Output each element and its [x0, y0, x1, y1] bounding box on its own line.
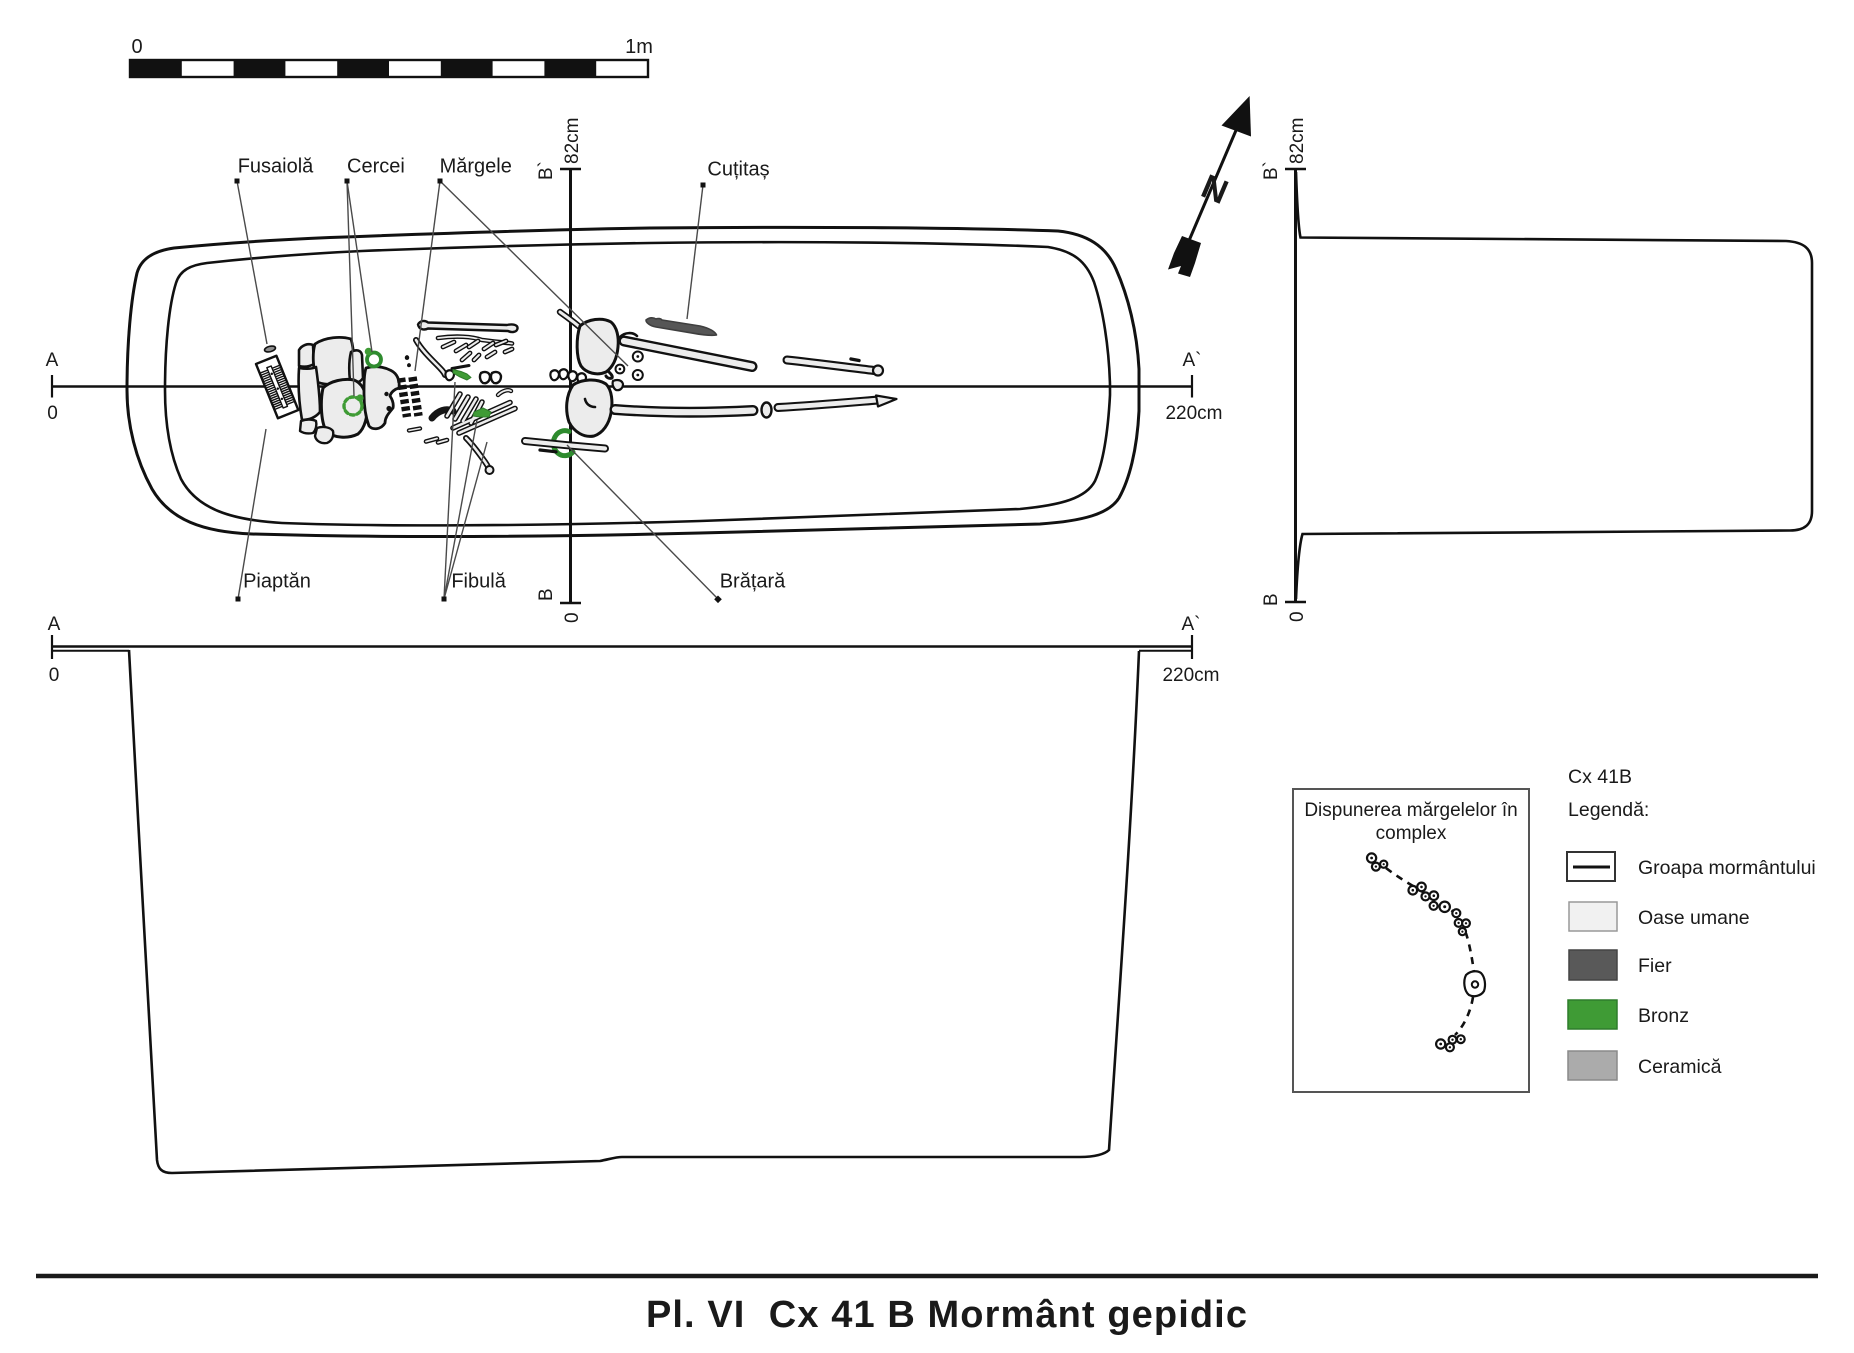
svg-text:complex: complex — [1376, 823, 1447, 844]
svg-text:0: 0 — [1287, 611, 1308, 622]
svg-text:Brățară: Brățară — [720, 571, 786, 593]
svg-text:B: B — [536, 588, 557, 601]
svg-text:220cm: 220cm — [1165, 403, 1222, 424]
svg-text:Bronz: Bronz — [1638, 1005, 1689, 1027]
svg-text:0: 0 — [131, 36, 142, 58]
svg-text:Piaptăn: Piaptăn — [243, 571, 311, 593]
svg-text:Cercei: Cercei — [347, 156, 405, 178]
svg-text:220cm: 220cm — [1162, 665, 1219, 686]
svg-text:A`: A` — [1183, 350, 1202, 371]
svg-text:Groapa mormântului: Groapa mormântului — [1638, 857, 1816, 879]
svg-text:Oase umane: Oase umane — [1638, 907, 1750, 929]
svg-text:Ceramică: Ceramică — [1638, 1056, 1722, 1078]
svg-text:0: 0 — [562, 612, 583, 623]
svg-text:82cm: 82cm — [1287, 118, 1308, 164]
svg-text:Pl. VI Cx 41 B Mormânt gepidi: Pl. VI Cx 41 B Mormânt gepidic — [646, 1294, 1248, 1336]
svg-text:Cuțitaș: Cuțitaș — [707, 159, 769, 181]
svg-text:Legendă:: Legendă: — [1568, 799, 1649, 821]
svg-text:Fibulă: Fibulă — [451, 571, 506, 593]
svg-text:A`: A` — [1182, 614, 1201, 635]
svg-text:Mărgele: Mărgele — [440, 156, 512, 178]
svg-text:0: 0 — [49, 665, 60, 686]
svg-text:B: B — [1261, 593, 1282, 606]
svg-text:A: A — [46, 350, 59, 371]
svg-text:Dispunerea mărgelelor în: Dispunerea mărgelelor în — [1304, 800, 1517, 821]
svg-text:0: 0 — [47, 403, 58, 424]
svg-text:B`: B` — [536, 161, 557, 180]
svg-text:Fier: Fier — [1638, 955, 1672, 977]
svg-text:1m: 1m — [625, 36, 653, 58]
svg-text:Fusaiolă: Fusaiolă — [238, 156, 314, 178]
svg-text:Cx 41B: Cx 41B — [1568, 766, 1632, 788]
svg-text:B`: B` — [1261, 161, 1282, 180]
svg-text:82cm: 82cm — [562, 118, 583, 164]
svg-text:A: A — [48, 614, 61, 635]
